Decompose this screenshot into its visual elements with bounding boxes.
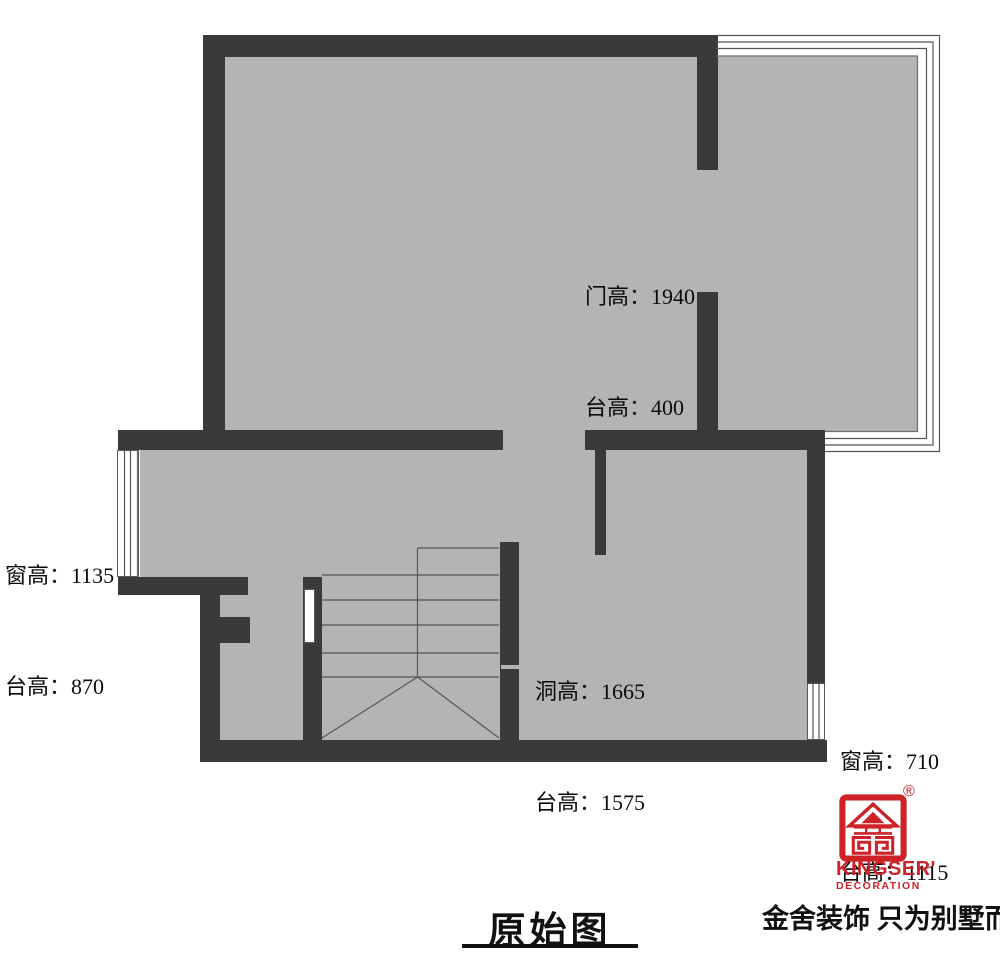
annotation-opening-mid: 洞高：1665 台高：1575 [535,599,645,895]
annotation-line: 洞高：1665 [535,673,645,710]
annotation-door-top: 门高：1940 台高：400 [585,204,695,500]
annotation-line: 窗高：1135 [5,557,114,594]
registered-mark: ® [903,783,915,801]
brand-name: KINGSER' [836,858,912,881]
staircase [322,548,499,738]
annotation-line: 门高：1940 [585,278,695,315]
kingser-logo-icon [838,794,908,862]
annotation-line: 窗高：710 [840,743,948,780]
title-underline [462,944,638,948]
left-window-glazing [125,450,138,577]
annotation-window-left: 窗高：1135 台高：870 [5,483,114,779]
brand-subtitle: DECORATION [836,880,912,892]
bay-window-glazing [716,36,940,452]
brand-tagline: 金舍装饰 只为别墅而生。 [762,897,1000,936]
floor-plan-page: 门高：1940 台高：400 窗高：1135 台高：870 洞高：1665 台高… [0,0,1000,959]
bottom-right-window-glazing [813,683,819,740]
annotation-line: 台高：870 [5,668,114,705]
annotation-line: 台高：1575 [535,784,645,821]
annotation-line: 台高：400 [585,389,695,426]
